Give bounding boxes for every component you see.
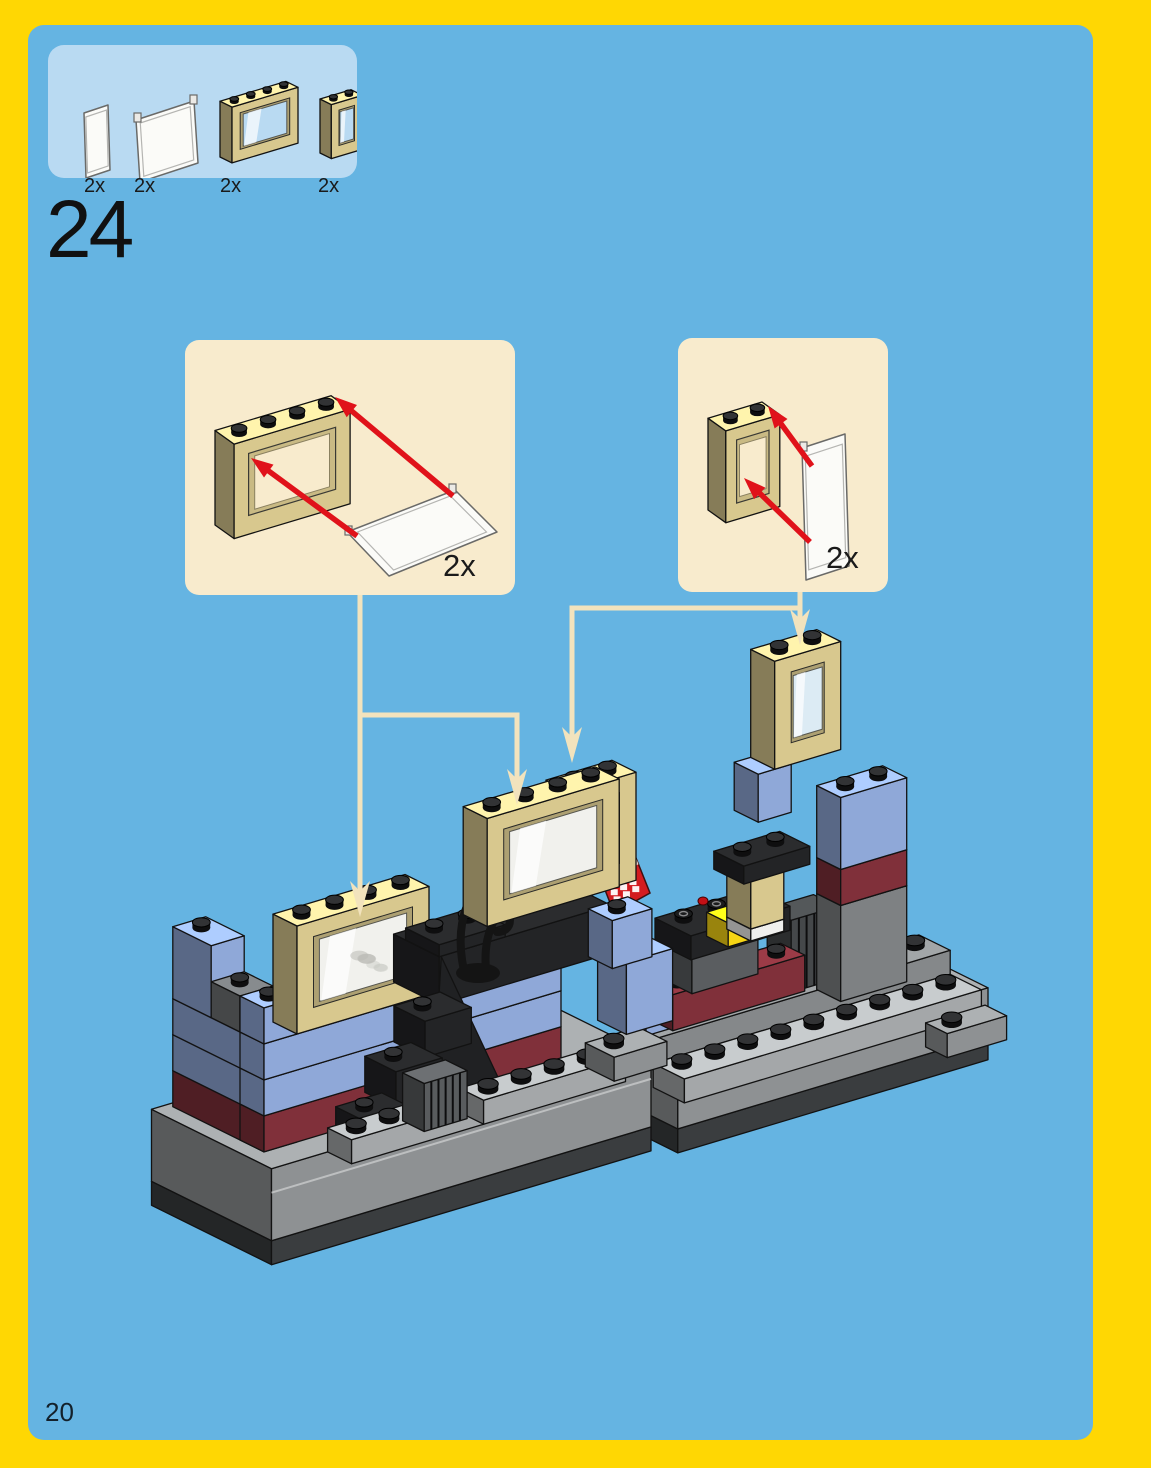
part-qty-label: 2x <box>134 175 155 198</box>
subassembly-callout-window-1x4x3: 2x <box>185 340 515 595</box>
subassembly-callout-window-1x2x3: 2x <box>678 338 888 592</box>
callout-qty-label: 2x <box>826 540 859 576</box>
step-parts-callout-box: 2x 2x 2x 2x <box>48 45 357 178</box>
step-number: 24 <box>46 183 131 277</box>
part-qty-label: 2x <box>318 175 339 198</box>
parts-thumbnails <box>48 45 357 178</box>
instruction-page-panel: 2x 2x 2x 2x 24 2x 2x 20 <box>28 25 1093 1440</box>
callout-qty-label: 2x <box>443 548 476 584</box>
part-qty-label: 2x <box>220 175 241 198</box>
assembly-placement-arrows <box>28 25 1093 1440</box>
page-number: 20 <box>45 1397 74 1428</box>
